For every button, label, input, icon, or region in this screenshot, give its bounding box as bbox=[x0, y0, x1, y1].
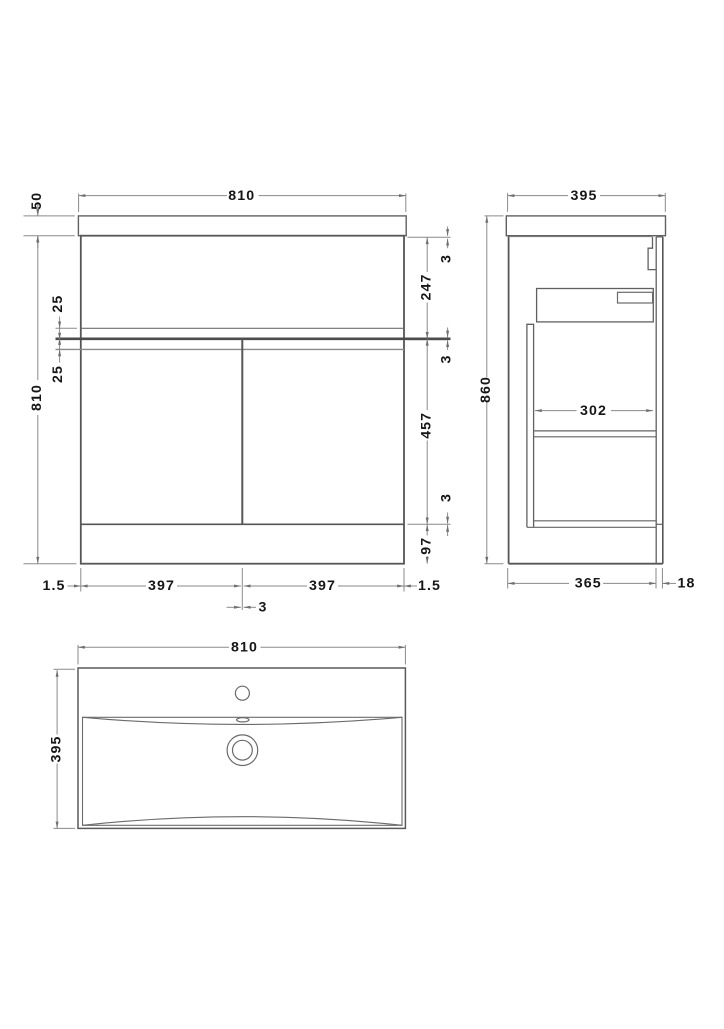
svg-text:302: 302 bbox=[580, 403, 607, 419]
svg-text:50: 50 bbox=[29, 192, 45, 210]
svg-text:860: 860 bbox=[478, 376, 494, 403]
svg-text:810: 810 bbox=[29, 384, 45, 411]
svg-text:247: 247 bbox=[418, 274, 434, 301]
svg-text:365: 365 bbox=[575, 576, 602, 592]
svg-text:3: 3 bbox=[439, 493, 455, 502]
svg-text:810: 810 bbox=[231, 640, 258, 656]
svg-text:3: 3 bbox=[439, 254, 455, 263]
svg-text:25: 25 bbox=[50, 295, 66, 313]
svg-text:18: 18 bbox=[678, 576, 696, 592]
svg-text:397: 397 bbox=[309, 578, 336, 594]
svg-text:395: 395 bbox=[571, 188, 598, 204]
svg-text:3: 3 bbox=[259, 599, 268, 615]
svg-text:3: 3 bbox=[439, 355, 455, 364]
svg-text:395: 395 bbox=[49, 736, 65, 763]
svg-text:457: 457 bbox=[418, 412, 434, 439]
svg-text:810: 810 bbox=[228, 188, 255, 204]
svg-text:397: 397 bbox=[148, 578, 175, 594]
svg-text:1.5: 1.5 bbox=[42, 578, 65, 594]
svg-text:97: 97 bbox=[419, 537, 435, 555]
svg-text:1.5: 1.5 bbox=[418, 578, 441, 594]
svg-text:25: 25 bbox=[50, 365, 66, 383]
